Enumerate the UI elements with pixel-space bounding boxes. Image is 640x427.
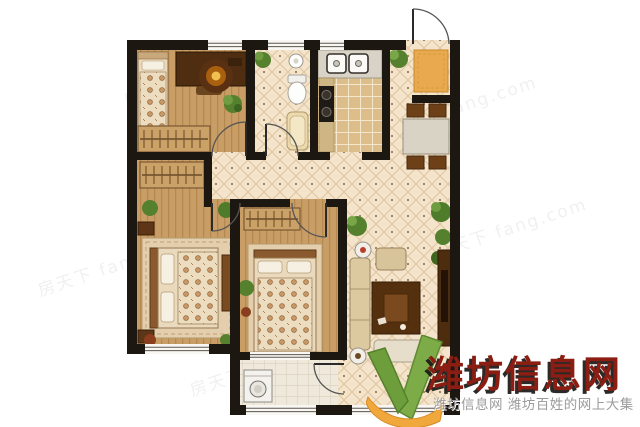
wardrobe	[140, 162, 204, 188]
sofa	[374, 340, 436, 362]
chair	[429, 104, 446, 117]
dining-table	[403, 119, 449, 154]
armchair	[376, 248, 406, 270]
window	[145, 344, 209, 354]
single-bed	[138, 52, 168, 130]
double-bed	[254, 250, 316, 352]
window	[246, 405, 316, 415]
entry-door	[413, 9, 449, 44]
door-mat	[414, 50, 448, 92]
bathtub	[287, 112, 308, 150]
wardrobe	[138, 126, 210, 152]
stove	[319, 86, 334, 122]
sofa	[350, 258, 370, 350]
tv-icon	[441, 270, 448, 322]
double-bed	[150, 248, 218, 328]
window	[320, 40, 344, 50]
floor-plan	[0, 0, 640, 427]
nightstand	[138, 222, 154, 235]
chair	[429, 156, 446, 169]
wardrobe	[244, 208, 300, 230]
washing-machine	[244, 370, 272, 402]
wash-basin	[289, 54, 303, 68]
chair	[407, 156, 424, 169]
window	[250, 352, 310, 360]
coffee-table	[372, 282, 420, 334]
window	[352, 405, 444, 415]
toilet	[288, 75, 306, 104]
chair	[407, 104, 424, 117]
floorplan-screenshot: 房天下 fang.com 房天下 fang.com 房天下 fang.com 房…	[0, 0, 640, 427]
window	[208, 40, 242, 50]
window	[268, 40, 304, 50]
